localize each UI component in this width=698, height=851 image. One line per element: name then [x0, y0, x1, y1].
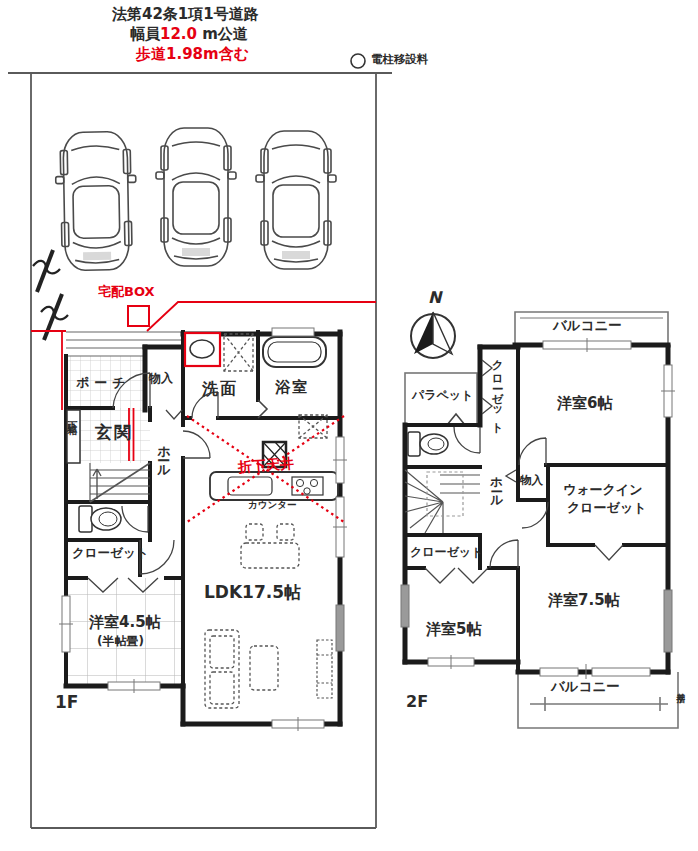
car-2: [156, 128, 236, 266]
floor1-label: 1F: [55, 693, 78, 712]
porch-steps: [66, 332, 183, 356]
room-label-parapet: パラペット: [412, 389, 473, 402]
washbasin: [185, 333, 220, 366]
room-label-bedroom45-note: (半帖畳): [97, 635, 144, 648]
kitchen-counter: [210, 472, 338, 500]
sofa: [205, 630, 239, 708]
road-width-prefix: 幅員: [130, 25, 160, 43]
bathtub: [263, 337, 326, 367]
compass-icon: [411, 312, 455, 358]
dining-set: [241, 524, 299, 568]
delivery-box-icon: [128, 306, 149, 326]
north-label: N: [428, 289, 441, 307]
room-label-bedroom5: 洋室5帖: [426, 621, 481, 638]
road-width-suffix: m公道: [197, 25, 248, 43]
room-label-storage-2f: 物入: [520, 474, 543, 487]
boundary-break-marks: [33, 250, 68, 340]
living-table: [250, 646, 278, 690]
car-1: [55, 131, 137, 270]
room-label-washroom: 洗面: [202, 380, 238, 398]
room-label-bathroom: 浴室: [275, 379, 309, 396]
stairs-1f: [90, 463, 150, 502]
toilet-2f: [408, 432, 448, 456]
room-label-storage-1f: 物入: [149, 372, 173, 385]
room-label-closet-north: クローゼット: [491, 352, 504, 430]
road-width-label: 幅員12.0 m公道: [130, 26, 248, 43]
room-label-balcony-north: バルコニー: [553, 318, 622, 333]
handrail-label: 手摺り: [676, 687, 685, 697]
room-label-wic-line2: クローゼット: [567, 501, 647, 515]
room-label-hall-2f: ホール: [490, 468, 504, 502]
utility-pole-icon: [351, 54, 365, 68]
sidewalk-note-label: 歩道1.98m含む: [136, 46, 249, 63]
room-label-entrance: 玄関: [95, 423, 133, 442]
washing-machine: [224, 334, 253, 371]
room-label-hall-1f: ホール: [156, 437, 170, 473]
stairs-2f: [405, 470, 480, 533]
car-3: [256, 131, 336, 269]
room-label-closet-1f: クローゼット: [72, 546, 148, 560]
room-label-closet-west: クローゼット: [410, 546, 483, 559]
room-label-porch: ポーチ: [76, 376, 131, 390]
tv-board: [317, 640, 332, 698]
room-label-shoe-cabinet: 下駄箱: [67, 413, 78, 419]
utility-pole-label: 電柱移設料: [371, 53, 429, 66]
room-label-bedroom45: 洋室4.5帖: [89, 614, 161, 631]
road-width-value: 12.0: [160, 25, 197, 43]
floor2-label: 2F: [406, 693, 428, 711]
floor2-plan: [401, 312, 678, 728]
road-regulation-label: 法第42条1項1号道路: [112, 6, 259, 23]
counter-label: カウンター: [248, 500, 296, 510]
toilet-1f: [79, 506, 121, 532]
room-label-balcony-south: バルコニー: [551, 679, 620, 694]
room-label-wic-line1: ウォークイン: [563, 483, 643, 497]
room-label-bedroom75: 洋室7.5帖: [548, 592, 620, 609]
room-label-bedroom6: 洋室6帖: [557, 395, 612, 412]
floor-plan-page: 法第42条1項1号道路 幅員12.0 m公道 歩道1.98m含む 電柱移設料 宅…: [0, 0, 698, 851]
delivery-box-label: 宅配BOX: [98, 285, 155, 299]
room-label-ldk: LDK17.5帖: [204, 583, 301, 602]
tatami-grid: [66, 578, 183, 686]
